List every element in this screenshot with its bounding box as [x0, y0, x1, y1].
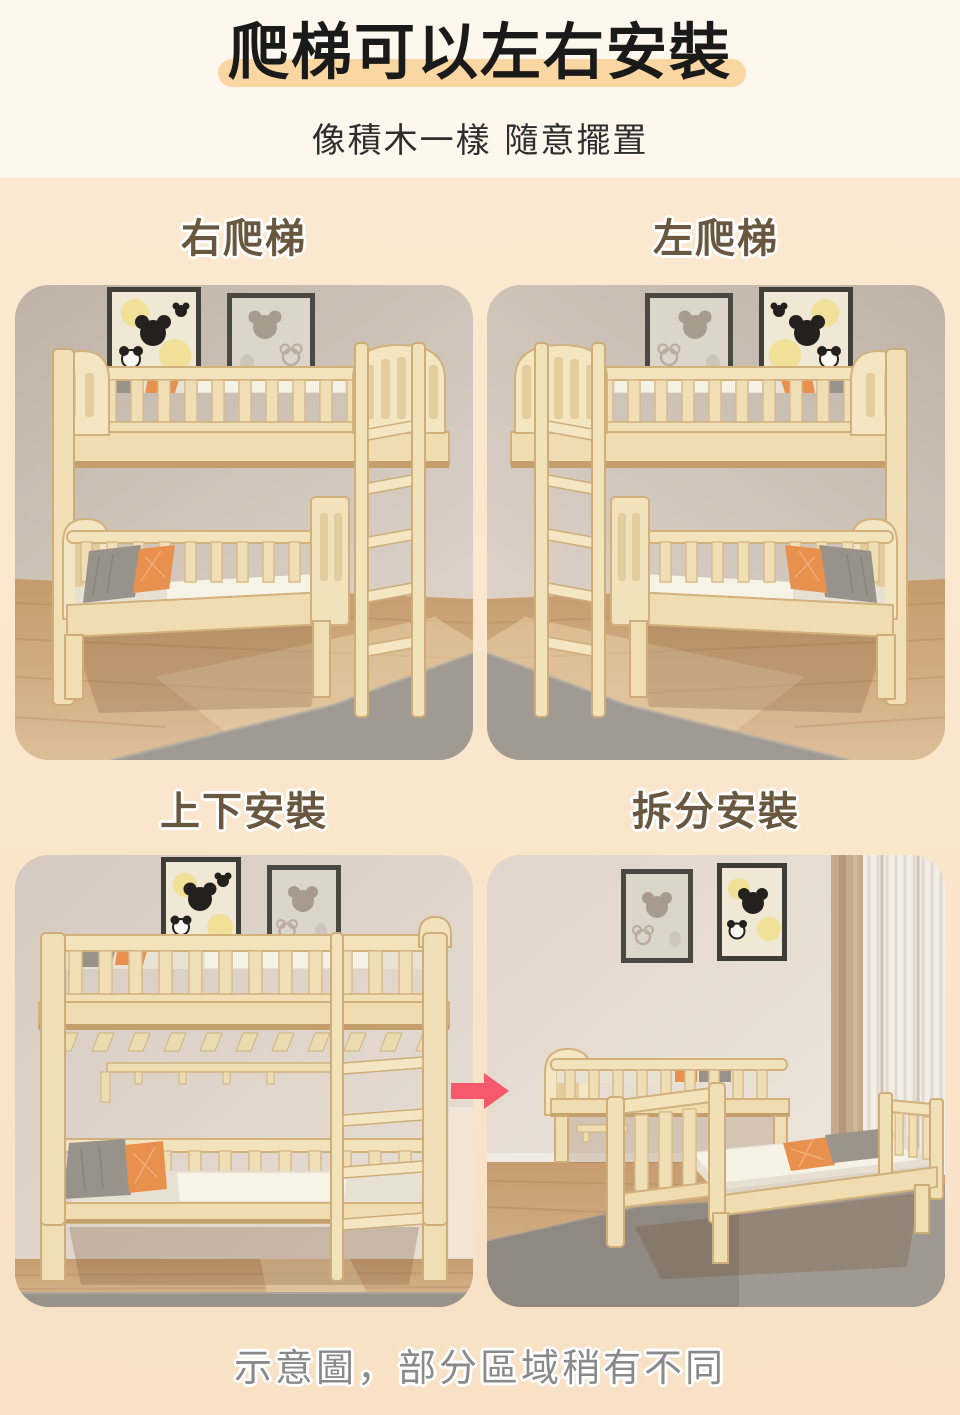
photo-bunk-bed-stacked: [15, 855, 473, 1307]
page-title: 爬梯可以左右安裝: [228, 16, 732, 89]
section-label-split: 拆分安裝: [487, 779, 945, 837]
section-label-ladder-right: 右爬梯: [15, 206, 473, 264]
section-label-stacked: 上下安裝: [15, 779, 473, 837]
product-detail-poster: 爬梯可以左右安裝 像積木一樣 隨意擺置 右爬梯 左爬梯 上下安裝 拆分安裝: [0, 0, 960, 1415]
photo-bunk-bed-split: [487, 855, 945, 1307]
page-subtitle: 像積木一樣 隨意擺置: [0, 113, 960, 162]
page-title-text: 爬梯可以左右安裝: [228, 17, 732, 88]
photo-bunk-bed-ladder-right: [15, 285, 473, 760]
section-label-ladder-left: 左爬梯: [487, 206, 945, 264]
red-arrow-icon: [451, 1071, 511, 1111]
photo-bunk-bed-ladder-left: [487, 285, 945, 760]
disclaimer-caption: 示意圖，部分區域稍有不同: [0, 1337, 960, 1392]
header: 爬梯可以左右安裝: [0, 16, 960, 89]
